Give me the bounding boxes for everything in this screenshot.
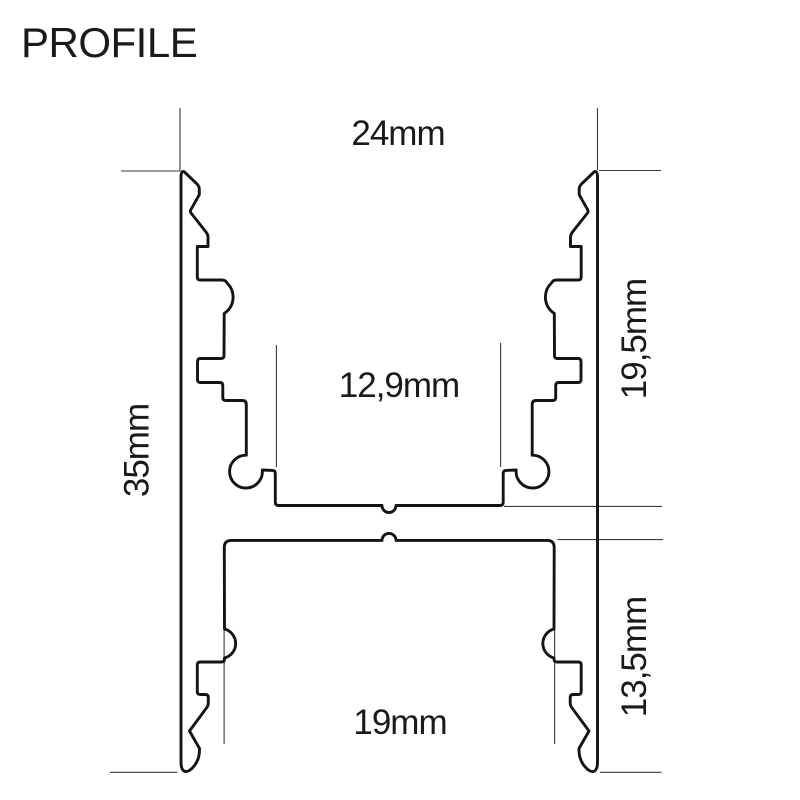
svg-text:35mm: 35mm: [118, 404, 157, 497]
svg-text:13,5mm: 13,5mm: [615, 597, 654, 717]
svg-text:12,9mm: 12,9mm: [339, 366, 459, 405]
svg-text:24mm: 24mm: [351, 114, 444, 153]
svg-text:19mm: 19mm: [353, 703, 446, 742]
svg-text:19,5mm: 19,5mm: [615, 279, 654, 399]
svg-text:PROFILE: PROFILE: [21, 19, 197, 66]
